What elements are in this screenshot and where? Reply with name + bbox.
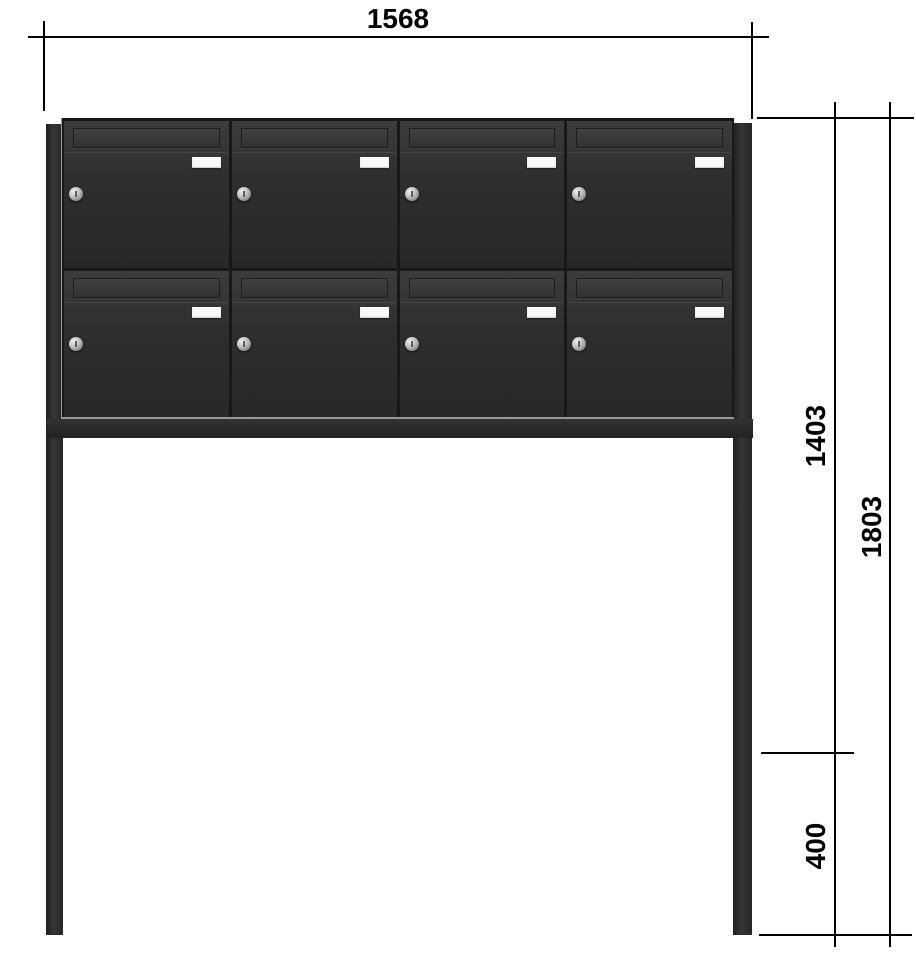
letter-flap-panel: [409, 128, 556, 148]
dimension-upper-height-label: 1403: [803, 376, 829, 496]
extension-line-width-right: [751, 22, 753, 119]
mailbox-door: [64, 271, 229, 418]
dimension-line-partial-heights: [834, 102, 836, 947]
dimension-lower-height-label: 400: [803, 786, 829, 906]
lock-icon: [572, 337, 586, 351]
cabinet-bottom-rail: [47, 419, 753, 438]
flap-bottom-edge: [232, 302, 397, 303]
flap-bottom-edge: [64, 302, 229, 303]
letter-flap-panel: [409, 278, 556, 298]
letter-flap-panel: [73, 278, 220, 298]
mailbox-door: [567, 121, 732, 268]
extension-line-height-middle: [761, 752, 854, 754]
nameplate: [527, 307, 556, 318]
lock-icon: [237, 187, 251, 201]
letter-flap-panel: [576, 128, 723, 148]
nameplate: [527, 157, 556, 168]
right-post: [733, 123, 752, 935]
flap-bottom-edge: [567, 152, 732, 153]
nameplate: [695, 307, 724, 318]
lock-icon: [69, 187, 83, 201]
flap-bottom-edge: [400, 302, 565, 303]
mailbox-door: [400, 121, 565, 268]
mailbox-door: [567, 271, 732, 418]
mailbox-door: [232, 271, 397, 418]
lock-icon: [572, 187, 586, 201]
dimension-width-label: 1568: [338, 6, 458, 32]
lock-icon: [69, 337, 83, 351]
mailbox-cabinet: [62, 118, 734, 419]
dimension-line-width: [28, 36, 769, 38]
mailbox-door-grid: [64, 121, 732, 417]
letter-flap-panel: [241, 128, 388, 148]
letter-flap-panel: [73, 128, 220, 148]
lock-icon: [405, 187, 419, 201]
mailbox-door: [232, 121, 397, 268]
letter-flap-panel: [241, 278, 388, 298]
extension-line-width-left: [43, 21, 45, 111]
left-post: [46, 124, 63, 935]
nameplate: [192, 307, 221, 318]
mailbox-door: [64, 121, 229, 268]
dimension-line-total-height: [889, 102, 891, 947]
nameplate: [360, 307, 389, 318]
drawing-canvas: 1568 1403 1803 400: [0, 0, 916, 966]
flap-bottom-edge: [400, 152, 565, 153]
flap-bottom-edge: [64, 152, 229, 153]
letter-flap-panel: [576, 278, 723, 298]
nameplate: [695, 157, 724, 168]
flap-bottom-edge: [567, 302, 732, 303]
mailbox-door: [400, 271, 565, 418]
flap-bottom-edge: [232, 152, 397, 153]
lock-icon: [237, 337, 251, 351]
nameplate: [192, 157, 221, 168]
lock-icon: [405, 337, 419, 351]
nameplate: [360, 157, 389, 168]
dimension-total-height-label: 1803: [859, 467, 885, 587]
